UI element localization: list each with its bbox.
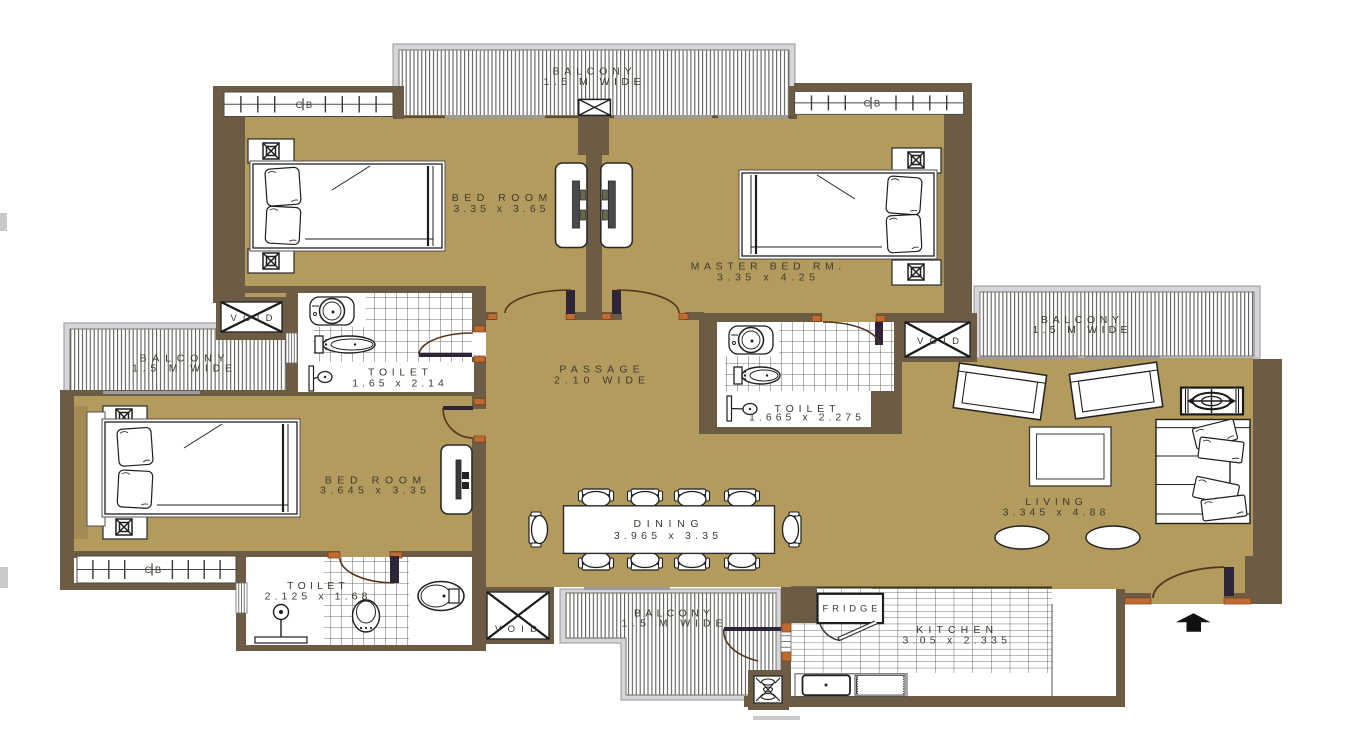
svg-text:C: C <box>296 100 303 111</box>
svg-text:C: C <box>864 98 871 109</box>
svg-text:B: B <box>155 565 161 576</box>
svg-text:C: C <box>145 565 152 576</box>
svg-text:B: B <box>306 100 312 111</box>
svg-text:B: B <box>874 98 880 109</box>
svg-text:1.665 x 2.275: 1.665 x 2.275 <box>749 412 861 424</box>
